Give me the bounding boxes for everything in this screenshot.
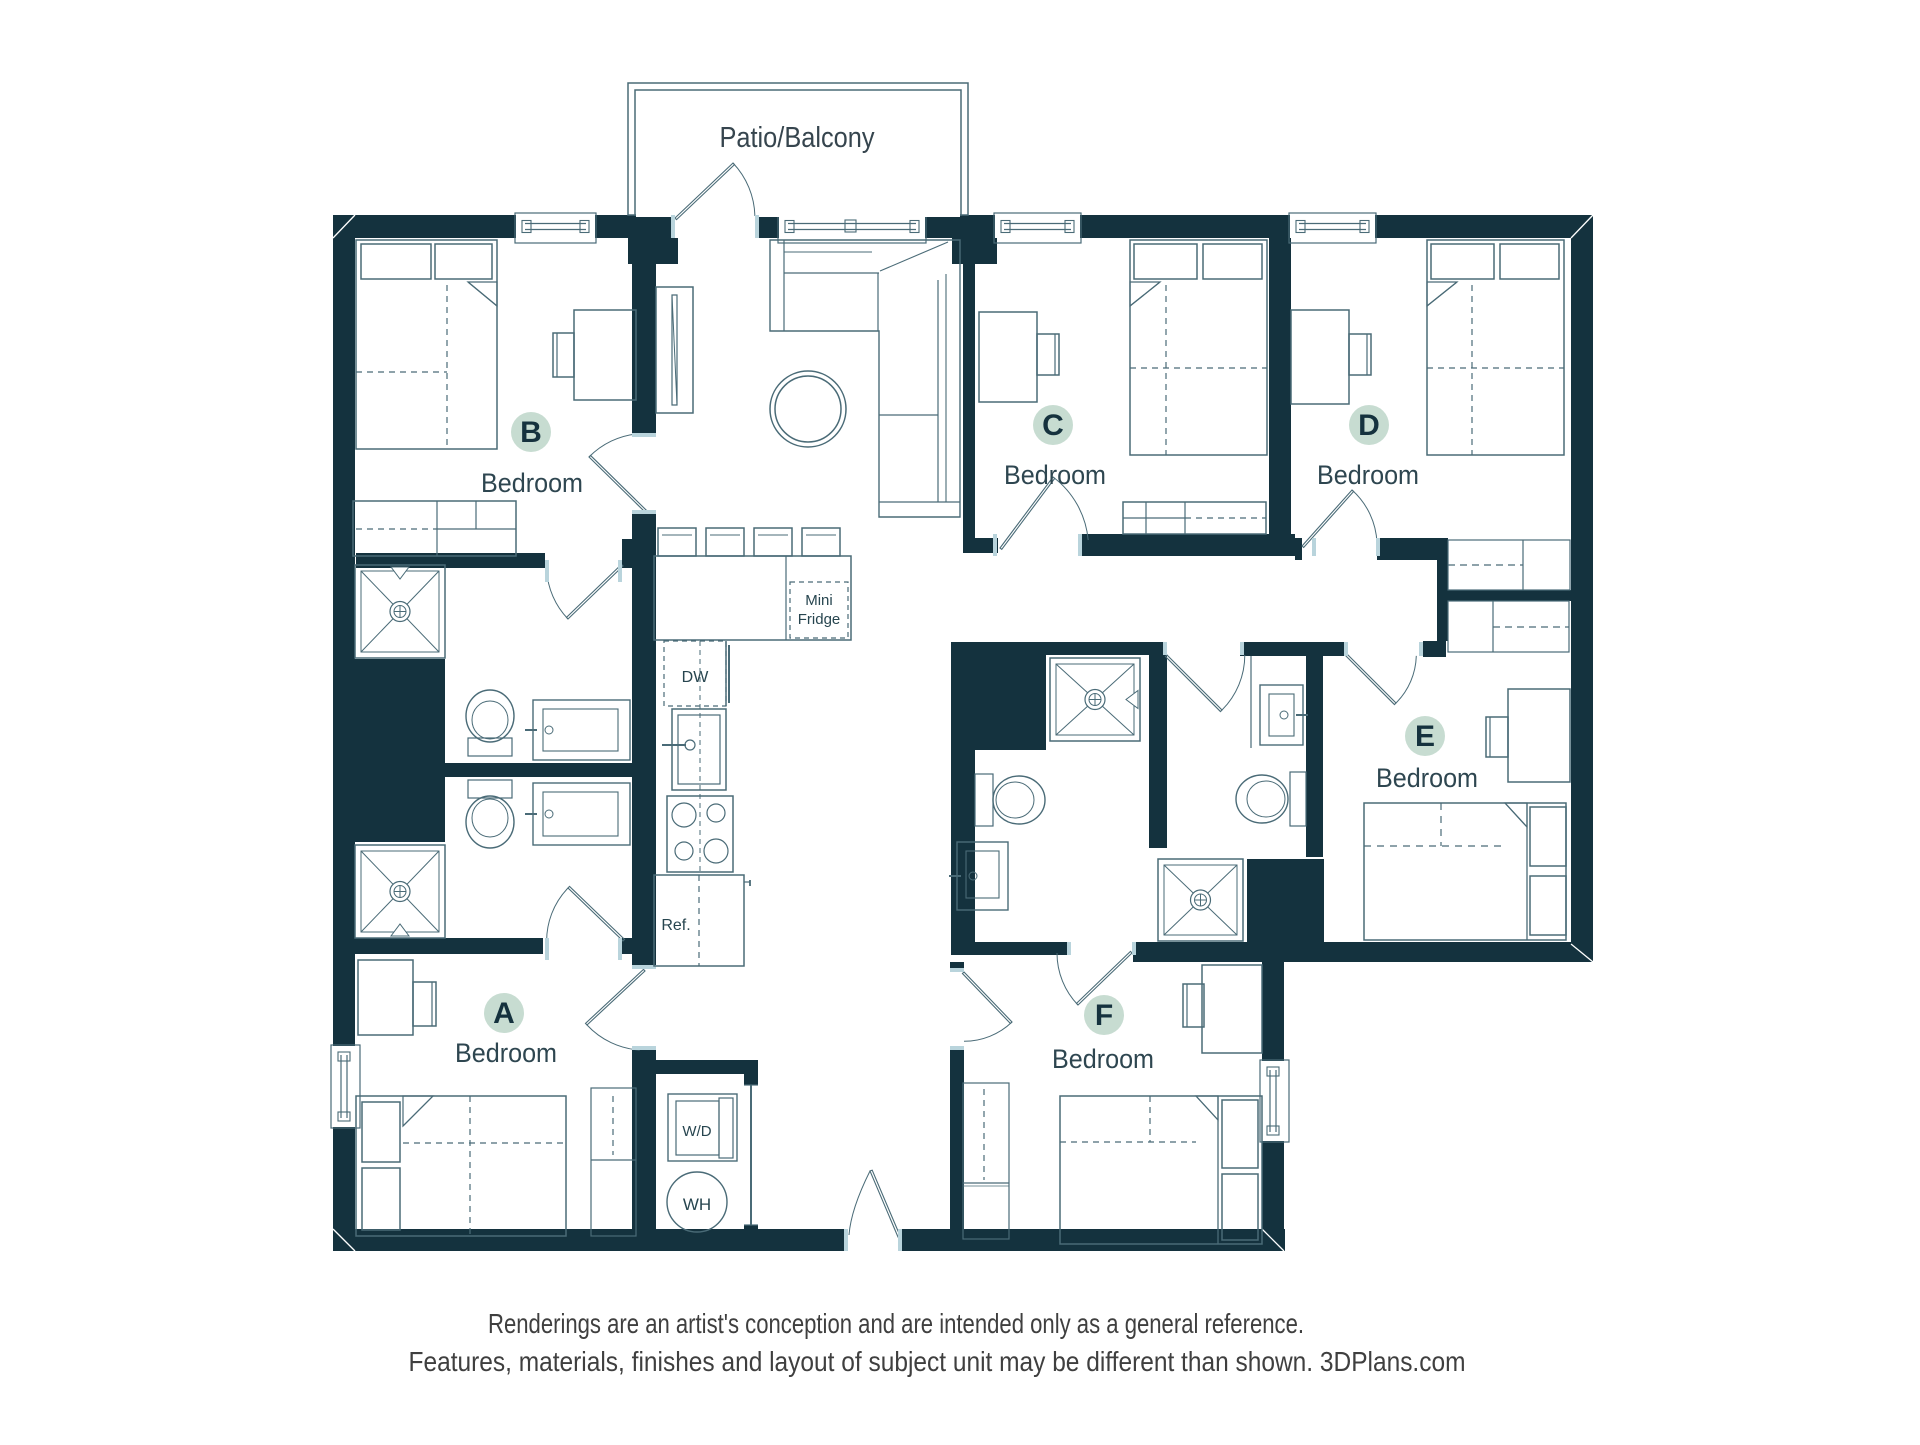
svg-text:Bedroom: Bedroom <box>1004 460 1106 490</box>
svg-text:Bedroom: Bedroom <box>455 1038 557 1068</box>
svg-text:Bedroom: Bedroom <box>481 468 583 498</box>
svg-text:W/D: W/D <box>682 1123 711 1140</box>
svg-text:B: B <box>520 416 542 449</box>
svg-text:DW: DW <box>682 669 710 686</box>
svg-text:A: A <box>493 997 515 1030</box>
svg-text:Ref.: Ref. <box>661 917 690 934</box>
svg-text:E: E <box>1415 720 1435 753</box>
svg-text:Mini: Mini <box>805 592 833 609</box>
svg-text:Features, materials, finishes: Features, materials, finishes and layout… <box>409 1346 1466 1377</box>
svg-text:Fridge: Fridge <box>798 611 841 628</box>
svg-text:D: D <box>1358 409 1380 442</box>
svg-text:F: F <box>1095 999 1113 1032</box>
svg-text:Bedroom: Bedroom <box>1376 763 1478 793</box>
svg-text:Bedroom: Bedroom <box>1052 1044 1154 1074</box>
svg-text:WH: WH <box>683 1195 711 1214</box>
svg-text:Renderings are an artist's con: Renderings are an artist's conception an… <box>488 1308 1304 1339</box>
svg-text:Patio/Balcony: Patio/Balcony <box>720 122 875 154</box>
svg-text:C: C <box>1042 409 1064 442</box>
svg-text:Bedroom: Bedroom <box>1317 460 1419 490</box>
